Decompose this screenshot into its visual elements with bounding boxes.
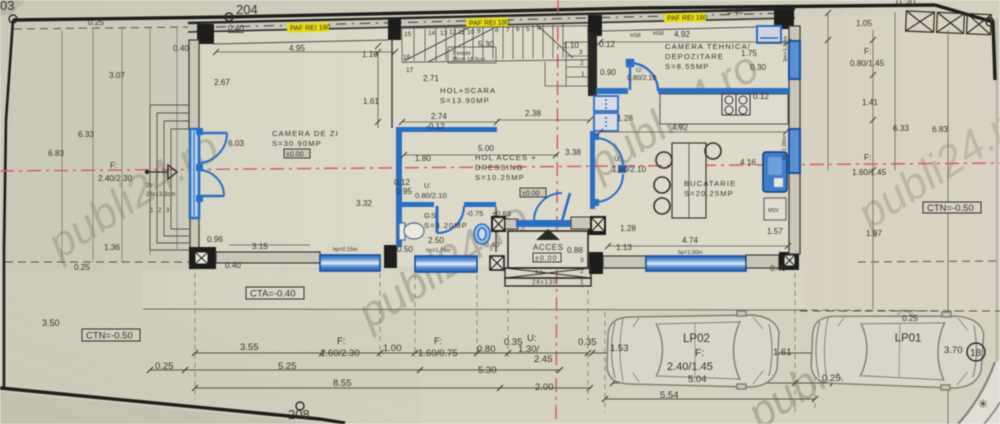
svg-text:1.80: 1.80	[415, 154, 431, 163]
svg-text:1.28: 1.28	[617, 114, 633, 123]
svg-text:MSV: MSV	[768, 208, 780, 214]
svg-text:2.40/1.45: 2.40/1.45	[667, 361, 713, 373]
svg-text:2.00: 2.00	[535, 382, 554, 393]
svg-text:1.05: 1.05	[856, 19, 872, 28]
svg-text:6: 6	[516, 26, 520, 33]
svg-text:±0.63: ±0.63	[492, 209, 511, 218]
svg-text:1.53: 1.53	[610, 343, 629, 354]
svg-text:4.74: 4.74	[682, 236, 698, 245]
svg-text:2.38: 2.38	[525, 109, 541, 118]
svg-text:-0.12: -0.12	[426, 122, 445, 131]
svg-text:3: 3	[580, 257, 585, 264]
svg-text:11: 11	[458, 29, 465, 36]
svg-text:13: 13	[440, 30, 448, 37]
svg-text:3.55: 3.55	[240, 342, 259, 353]
svg-text:0.25: 0.25	[902, 314, 918, 323]
svg-text:3m+1.00m: 3m+1.00m	[783, 35, 789, 62]
svg-text:0.80/2.10: 0.80/2.10	[627, 75, 656, 82]
svg-text:12: 12	[449, 29, 457, 36]
svg-text:HS8: HS8	[653, 31, 664, 37]
svg-text:0.35: 0.35	[578, 337, 597, 348]
svg-text:4.92: 4.92	[672, 123, 688, 132]
svg-text:1.75: 1.75	[741, 49, 757, 58]
svg-text:1.61: 1.61	[773, 347, 792, 358]
svg-text:0.88: 0.88	[567, 246, 583, 255]
svg-text:0.25: 0.25	[74, 263, 90, 272]
svg-text:0.25: 0.25	[88, 18, 104, 27]
svg-text:0.95: 0.95	[396, 187, 412, 196]
svg-text:5.30: 5.30	[478, 40, 494, 49]
svg-text:CAMERA TEHNICA/: CAMERA TEHNICA/	[665, 42, 751, 51]
svg-text:HOL+SCARA: HOL+SCARA	[440, 86, 496, 95]
svg-text:F:: F:	[110, 161, 117, 170]
svg-text:1.41: 1.41	[862, 98, 878, 107]
svg-text:1.60/1.45: 1.60/1.45	[852, 168, 887, 177]
svg-text:HS8: HS8	[630, 33, 641, 39]
svg-text:1.13: 1.13	[616, 243, 632, 252]
svg-text:2.45: 2.45	[534, 354, 553, 365]
svg-text:U:: U:	[636, 67, 643, 74]
svg-text:4.16: 4.16	[740, 158, 756, 167]
svg-text:28x13.3cm: 28x13.3cm	[146, 192, 175, 198]
svg-text:hp=0.15m: hp=0.15m	[333, 247, 358, 253]
svg-text:3.15: 3.15	[252, 242, 268, 251]
svg-text:PAF REI 180: PAF REI 180	[290, 24, 331, 32]
svg-text:0.12: 0.12	[753, 92, 769, 101]
svg-text:03: 03	[0, 0, 14, 13]
svg-text:2.67: 2.67	[214, 78, 230, 87]
svg-text:-0.40: -0.40	[482, 240, 499, 249]
svg-text:8: 8	[495, 27, 499, 34]
svg-text:S=3.20MP: S=3.20MP	[424, 221, 468, 230]
svg-text:5.04: 5.04	[688, 374, 707, 385]
svg-text:0.80/1.45: 0.80/1.45	[850, 59, 885, 68]
svg-text:S=20.25MP: S=20.25MP	[684, 189, 734, 198]
svg-text:3.70: 3.70	[944, 345, 963, 356]
svg-text:6.33: 6.33	[893, 124, 909, 133]
svg-text:2: 2	[580, 60, 584, 67]
svg-text:-0.75: -0.75	[466, 209, 483, 218]
svg-text:6.03: 6.03	[228, 139, 244, 148]
svg-text:0.25: 0.25	[822, 373, 841, 384]
svg-text:17: 17	[406, 67, 414, 74]
svg-text:3: 3	[579, 49, 583, 56]
svg-text:5.30: 5.30	[478, 365, 497, 376]
svg-text:10: 10	[467, 29, 475, 36]
svg-text:0.50: 0.50	[397, 245, 413, 254]
svg-text:0.40: 0.40	[770, 264, 786, 273]
svg-text:S=8.55MP: S=8.55MP	[665, 62, 709, 71]
svg-text:1: 1	[580, 279, 585, 286]
svg-text:2.71: 2.71	[423, 74, 439, 83]
svg-text:2.40/2.30: 2.40/2.30	[98, 174, 133, 183]
svg-text:U:: U:	[614, 156, 621, 163]
svg-text:0.40: 0.40	[228, 24, 244, 33]
svg-text:1.57: 1.57	[767, 227, 783, 236]
svg-text:8.55: 8.55	[333, 378, 352, 389]
svg-text:1.28: 1.28	[620, 224, 636, 233]
svg-text:±0.00: ±0.00	[535, 256, 557, 263]
svg-text:1.00: 1.00	[383, 343, 402, 354]
svg-text:1.60/2.30: 1.60/2.30	[320, 348, 360, 359]
svg-text:hp=1.00m: hp=1.00m	[678, 250, 703, 256]
svg-text:U:: U:	[527, 333, 537, 344]
svg-text:208: 208	[288, 407, 310, 422]
svg-text:2: 2	[580, 268, 585, 275]
svg-text:DRESSING: DRESSING	[475, 163, 523, 172]
svg-text:BUCATARIE: BUCATARIE	[684, 179, 736, 188]
svg-text:F:: F:	[695, 347, 704, 359]
svg-text:9: 9	[477, 28, 481, 35]
svg-text:S=30.90MP: S=30.90MP	[272, 139, 322, 148]
svg-text:PAF REI 180: PAF REI 180	[667, 14, 708, 22]
svg-text:14: 14	[428, 30, 436, 37]
svg-text:CAMERA DE ZI: CAMERA DE ZI	[272, 129, 339, 138]
svg-text:CTN=-0.50: CTN=-0.50	[86, 331, 133, 342]
svg-text:F:: F:	[434, 336, 442, 347]
svg-text:3.38: 3.38	[565, 148, 581, 157]
svg-text:5.00: 5.00	[478, 144, 494, 153]
svg-text:15: 15	[404, 31, 412, 38]
svg-text:1.60/0.75: 1.60/0.75	[418, 348, 458, 359]
svg-text:0.80: 0.80	[477, 344, 496, 355]
svg-text:U:: U:	[424, 183, 431, 190]
svg-text:50: 50	[535, 271, 544, 277]
svg-text:5.25: 5.25	[278, 361, 297, 372]
svg-text:0.12: 0.12	[394, 178, 410, 187]
svg-text:F:: F:	[864, 47, 871, 56]
svg-text:CTN=-0.50: CTN=-0.50	[927, 203, 974, 214]
svg-text:5.54: 5.54	[660, 390, 679, 401]
svg-text:0.30: 0.30	[750, 63, 766, 72]
svg-text:0.90: 0.90	[600, 68, 616, 77]
svg-text:28cm 18.0cm: 28cm 18.0cm	[452, 57, 485, 63]
svg-text:1.60/2.10: 1.60/2.10	[612, 165, 647, 174]
svg-text:GS: GS	[424, 211, 437, 220]
svg-text:hs=1.00m: hs=1.00m	[782, 135, 788, 160]
svg-text:1.97: 1.97	[866, 229, 882, 238]
svg-text:6.83: 6.83	[932, 125, 948, 134]
svg-text:1.10: 1.10	[362, 50, 378, 59]
svg-text:7: 7	[506, 27, 510, 34]
svg-text:HOL ACCES +: HOL ACCES +	[475, 153, 537, 162]
svg-text:4: 4	[537, 25, 541, 32]
svg-text:28x130: 28x130	[532, 280, 558, 286]
svg-text:2.74: 2.74	[431, 112, 447, 121]
svg-text:0.40: 0.40	[727, 7, 743, 16]
svg-text:6.83: 6.83	[48, 149, 64, 158]
svg-text:F:: F:	[337, 336, 345, 347]
svg-text:PAF REI 180: PAF REI 180	[469, 19, 510, 27]
svg-text:0.40: 0.40	[225, 261, 241, 270]
svg-text:5: 5	[526, 26, 530, 33]
svg-text:S=13.90MP: S=13.90MP	[440, 96, 490, 105]
svg-text:±0.00: ±0.00	[286, 152, 304, 159]
svg-text:0.80/2.10: 0.80/2.10	[415, 191, 447, 200]
svg-text:16: 16	[403, 54, 411, 61]
svg-text:CTA=-0.40: CTA=-0.40	[250, 289, 296, 300]
svg-text:ACCES: ACCES	[533, 243, 564, 252]
svg-text:F:: F:	[864, 153, 871, 162]
svg-text:hp=1.79m: hp=1.79m	[426, 248, 451, 254]
svg-text:3.50: 3.50	[42, 318, 60, 328]
svg-text:3.07: 3.07	[109, 71, 125, 80]
svg-text:4.95: 4.95	[289, 44, 305, 53]
svg-text:0.40: 0.40	[173, 44, 189, 53]
svg-text:6.33: 6.33	[78, 130, 94, 139]
svg-text:±0.00: ±0.00	[522, 191, 540, 198]
svg-text:1.10: 1.10	[563, 41, 579, 50]
svg-text:4.92: 4.92	[674, 30, 690, 39]
svg-text:LP02: LP02	[683, 333, 710, 345]
svg-text:2.50: 2.50	[428, 236, 444, 245]
svg-text:1.61: 1.61	[363, 97, 379, 106]
svg-text:3.32: 3.32	[356, 199, 372, 208]
svg-text:S=10.25MP: S=10.25MP	[475, 173, 525, 182]
svg-text:0.25: 0.25	[155, 361, 174, 372]
svg-text:18: 18	[970, 348, 982, 359]
svg-text:204: 204	[236, 2, 258, 17]
svg-text:1.36: 1.36	[104, 243, 120, 252]
svg-text:0.20: 0.20	[896, 0, 916, 9]
svg-text:1: 1	[581, 71, 585, 78]
svg-text:3tr: 3tr	[146, 183, 153, 189]
svg-text:0.96: 0.96	[207, 235, 223, 244]
svg-text:LP01: LP01	[895, 332, 922, 344]
svg-text:DEPOZITARE: DEPOZITARE	[665, 52, 724, 61]
svg-text:0.12: 0.12	[599, 40, 615, 49]
svg-text:✳: ✳	[978, 397, 988, 411]
